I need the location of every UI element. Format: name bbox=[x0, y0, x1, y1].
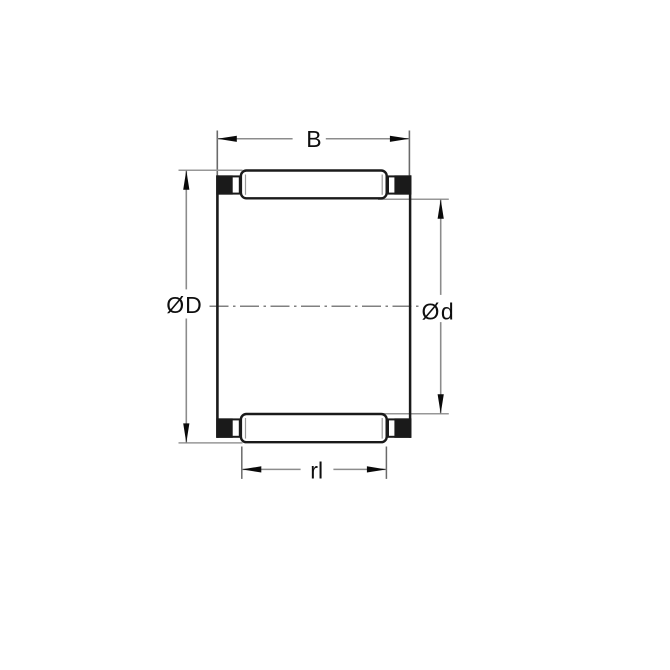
svg-text:B: B bbox=[306, 126, 321, 152]
svg-text:ØD: ØD bbox=[166, 292, 203, 318]
svg-text:rl: rl bbox=[310, 457, 323, 483]
svg-text:Ød: Ød bbox=[421, 299, 455, 325]
